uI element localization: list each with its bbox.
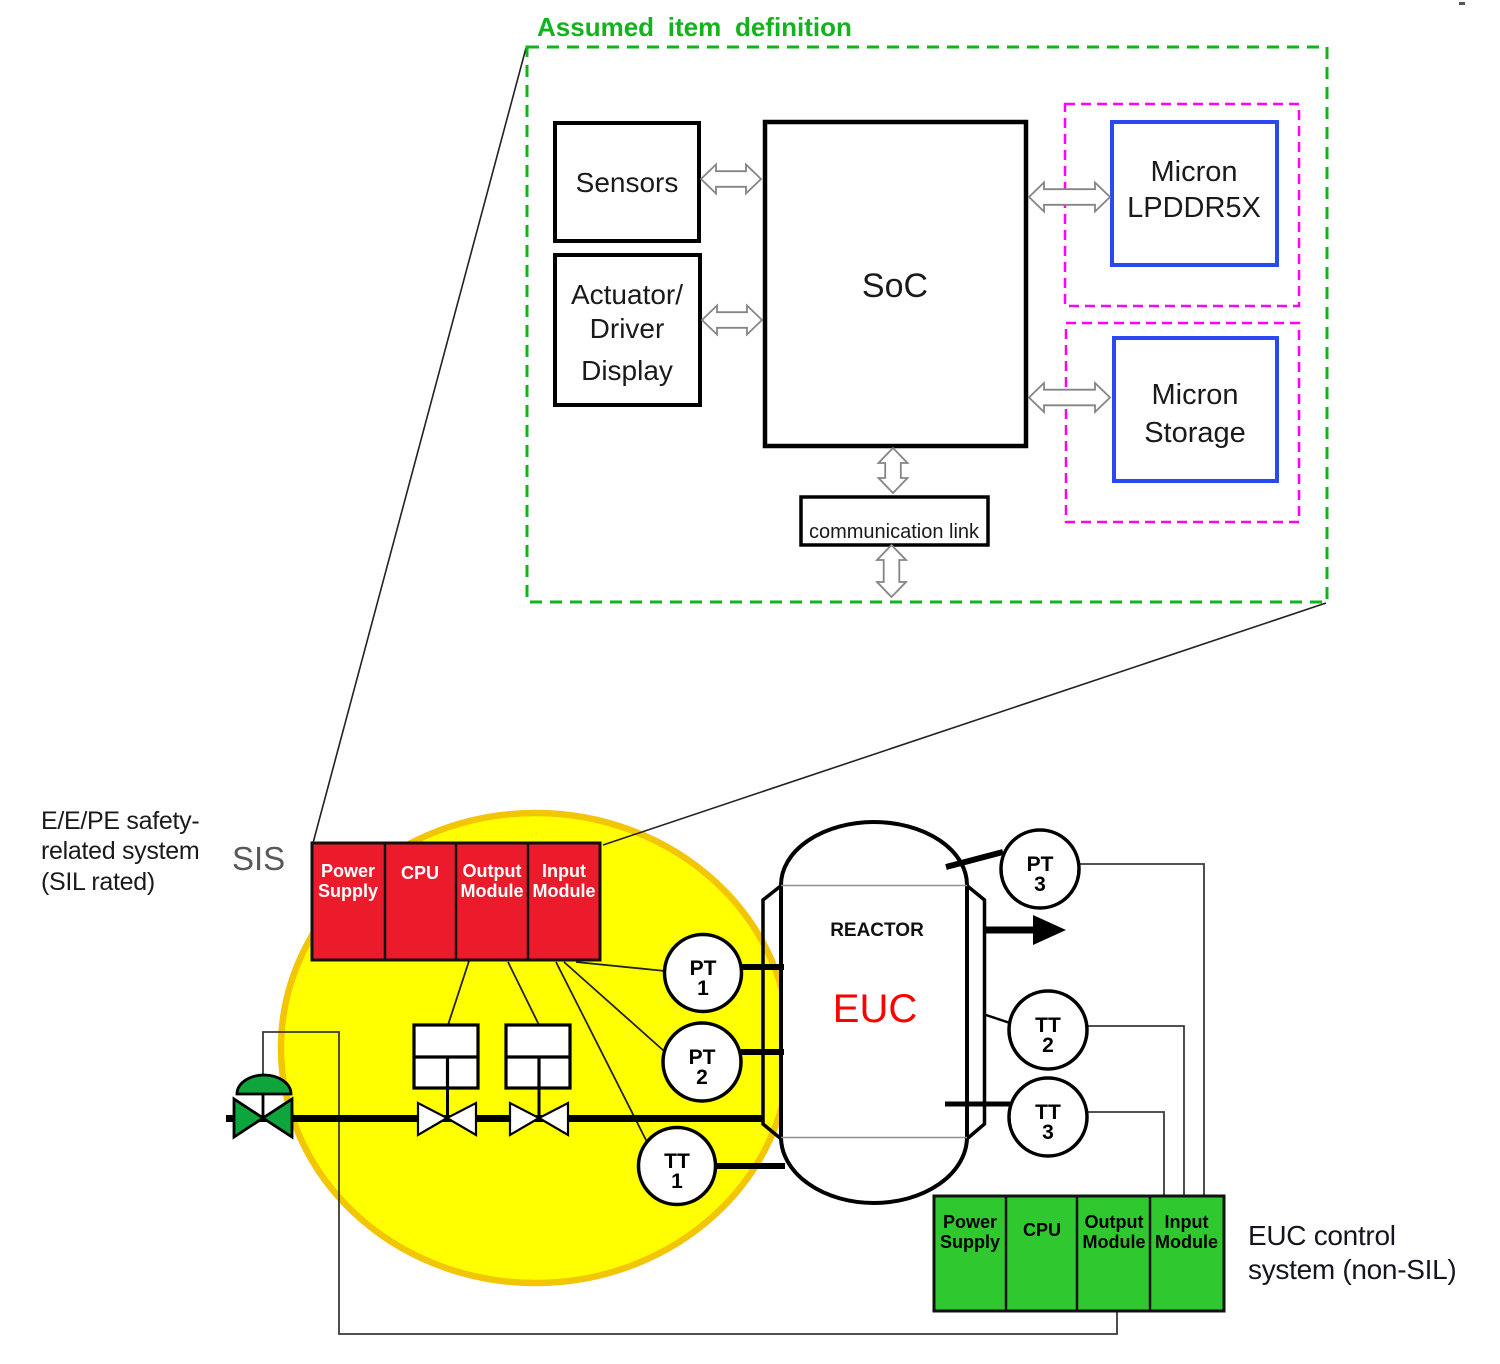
svg-text:Input: Input bbox=[542, 861, 586, 881]
svg-text:Actuator/: Actuator/ bbox=[571, 279, 683, 310]
svg-text:Power: Power bbox=[321, 861, 375, 881]
svg-text:LPDDR5X: LPDDR5X bbox=[1127, 192, 1261, 224]
svg-text:Supply: Supply bbox=[940, 1232, 1000, 1252]
svg-text:system (non-SIL): system (non-SIL) bbox=[1248, 1254, 1456, 1285]
svg-text:SIS: SIS bbox=[232, 840, 285, 877]
svg-text:3: 3 bbox=[1034, 873, 1046, 896]
svg-text:Module: Module bbox=[461, 881, 524, 901]
svg-text:CPU: CPU bbox=[1023, 1220, 1061, 1240]
svg-text:EUC control: EUC control bbox=[1248, 1220, 1396, 1251]
svg-text:Supply: Supply bbox=[318, 881, 378, 901]
svg-text:related system: related system bbox=[41, 837, 199, 865]
svg-text:Module: Module bbox=[533, 881, 596, 901]
svg-text:Input: Input bbox=[1165, 1212, 1209, 1232]
svg-text:SoC: SoC bbox=[862, 267, 928, 305]
svg-text:2: 2 bbox=[1042, 1034, 1054, 1057]
svg-text:3: 3 bbox=[1042, 1121, 1054, 1144]
svg-text:1: 1 bbox=[697, 977, 709, 1000]
svg-text:Output: Output bbox=[463, 861, 522, 881]
svg-text:CPU: CPU bbox=[401, 863, 439, 883]
svg-text:1: 1 bbox=[671, 1170, 683, 1193]
svg-text:Power: Power bbox=[943, 1212, 997, 1232]
svg-text:Assumed item definition: Assumed item definition bbox=[537, 12, 852, 42]
svg-text:Storage: Storage bbox=[1144, 417, 1246, 449]
svg-text:Output: Output bbox=[1085, 1212, 1144, 1232]
svg-text:2: 2 bbox=[696, 1066, 708, 1089]
svg-text:communication link: communication link bbox=[809, 521, 980, 543]
svg-text:Display: Display bbox=[581, 355, 673, 386]
svg-text:REACTOR: REACTOR bbox=[830, 920, 924, 941]
svg-text:Driver: Driver bbox=[590, 313, 665, 344]
svg-text:E/E/PE safety-: E/E/PE safety- bbox=[41, 807, 199, 835]
svg-text:Micron: Micron bbox=[1150, 156, 1237, 188]
svg-text:Module: Module bbox=[1083, 1232, 1146, 1252]
svg-text:Module: Module bbox=[1155, 1232, 1218, 1252]
svg-text:Sensors: Sensors bbox=[576, 167, 679, 198]
svg-text:Micron: Micron bbox=[1151, 379, 1238, 411]
svg-text:EUC: EUC bbox=[833, 987, 917, 1031]
svg-text:(SIL rated): (SIL rated) bbox=[41, 868, 155, 896]
